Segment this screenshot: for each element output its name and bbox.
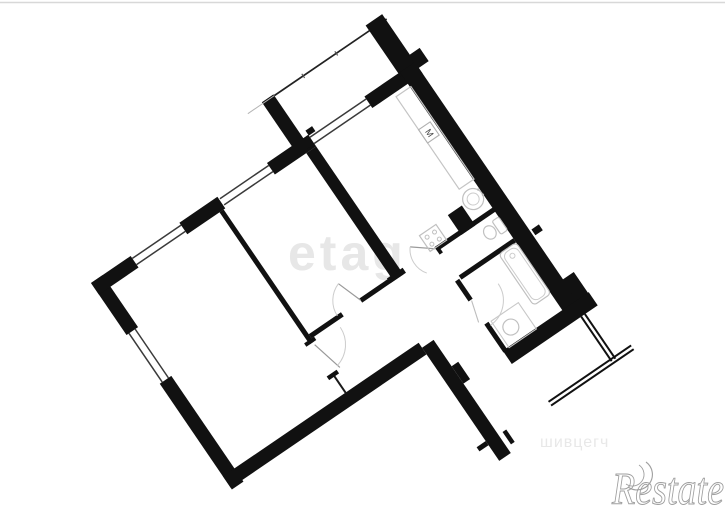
svg-text:шивцегч: шивцегч	[540, 434, 609, 451]
